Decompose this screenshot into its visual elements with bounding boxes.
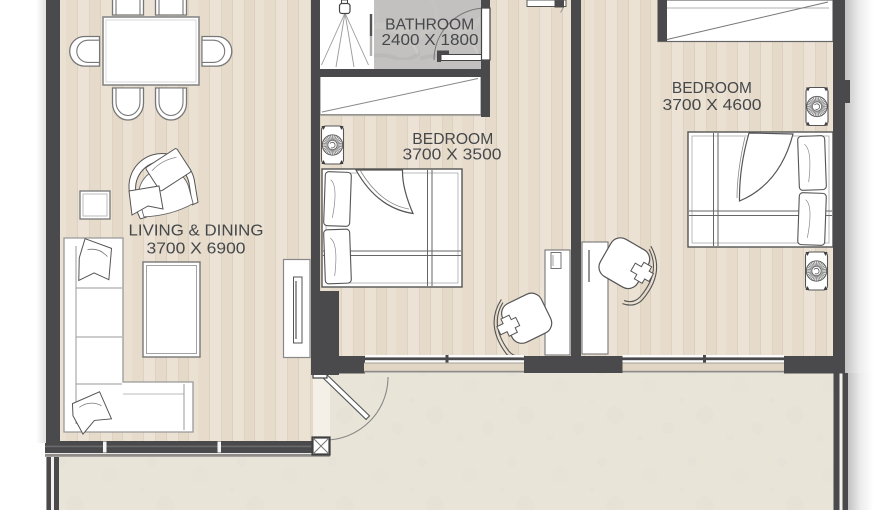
svg-text:3700 X 4600: 3700 X 4600 [663,97,762,114]
svg-text:3700 X 6900: 3700 X 6900 [147,241,246,258]
svg-text:2400 X 1800: 2400 X 1800 [382,32,479,49]
svg-text:BATHROOM: BATHROOM [385,17,474,34]
svg-text:3700 X 3500: 3700 X 3500 [403,147,502,164]
svg-text:LIVING & DINING: LIVING & DINING [129,222,264,239]
svg-text:BEDROOM: BEDROOM [672,80,752,97]
